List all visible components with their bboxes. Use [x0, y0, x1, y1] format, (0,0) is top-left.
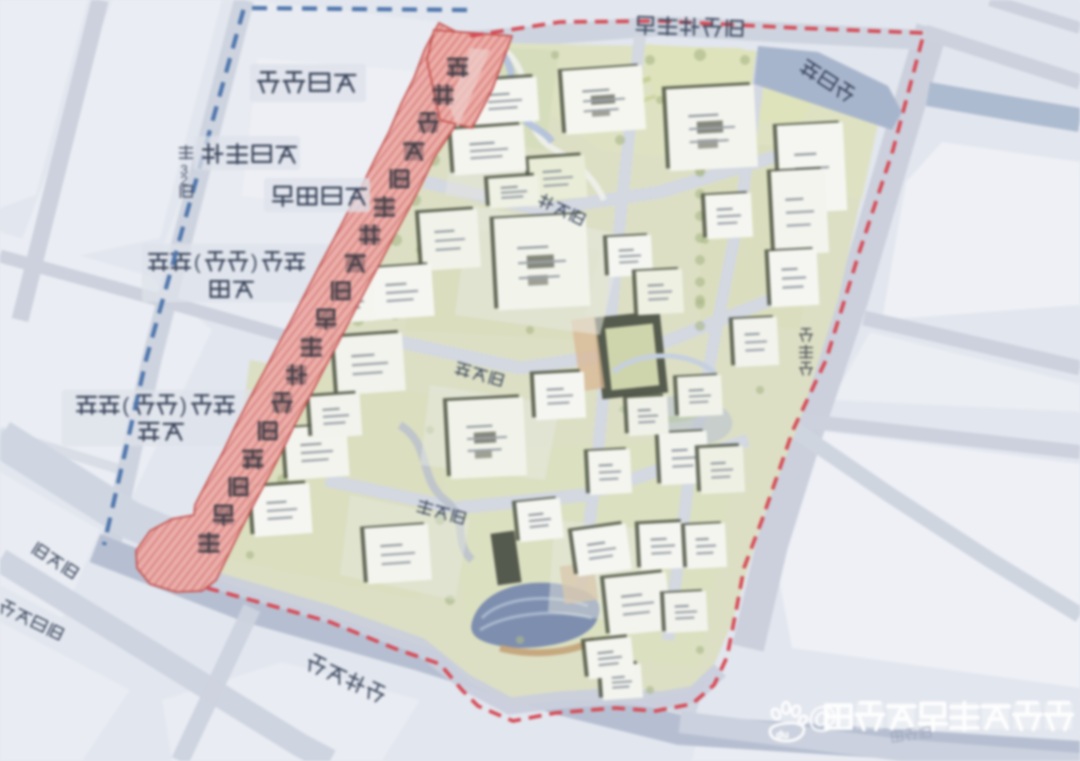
svg-text:du: du: [776, 729, 789, 741]
